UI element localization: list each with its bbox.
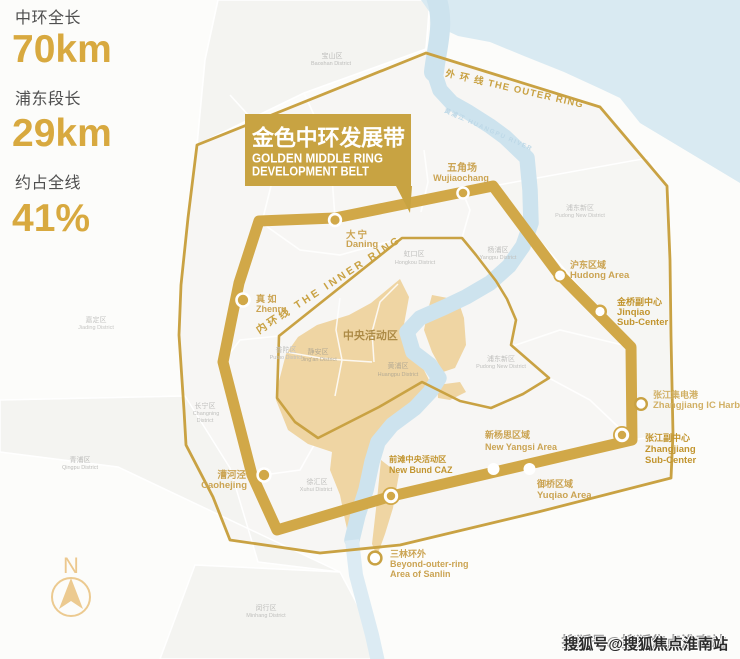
svg-text:闵行区: 闵行区: [256, 603, 277, 612]
svg-text:Baoshan District: Baoshan District: [311, 61, 352, 67]
svg-text:徐汇区: 徐汇区: [307, 477, 328, 486]
svg-text:N: N: [63, 553, 79, 578]
svg-text:41%: 41%: [12, 197, 90, 240]
svg-text:宝山区: 宝山区: [322, 51, 343, 60]
svg-text:Daning: Daning: [346, 239, 378, 250]
svg-text:御桥区域: 御桥区域: [536, 478, 573, 489]
svg-text:Hudong Area: Hudong Area: [570, 270, 630, 281]
svg-text:金桥副中心: 金桥副中心: [616, 296, 662, 307]
svg-text:嘉定区: 嘉定区: [86, 315, 107, 324]
svg-text:黄浦区: 黄浦区: [388, 361, 409, 370]
svg-text:约占全线: 约占全线: [15, 174, 81, 192]
svg-text:Jing'an District: Jing'an District: [301, 357, 337, 363]
svg-text:杨浦区: 杨浦区: [488, 245, 509, 254]
svg-text:Beyond-outer-ring: Beyond-outer-ring: [390, 559, 469, 569]
svg-text:Pudong New District: Pudong New District: [555, 213, 605, 219]
svg-text:静安区: 静安区: [308, 347, 329, 356]
svg-text:Yangpu District: Yangpu District: [480, 255, 517, 261]
svg-text:普陀区: 普陀区: [276, 345, 297, 354]
svg-text:浦东新区: 浦东新区: [487, 354, 515, 363]
svg-text:搜狐号@搜狐焦点淮南站: 搜狐号@搜狐焦点淮南站: [563, 635, 728, 653]
svg-text:虹口区: 虹口区: [404, 249, 425, 258]
svg-text:金色中环发展带: 金色中环发展带: [251, 126, 405, 151]
svg-text:Sub-Center: Sub-Center: [645, 455, 697, 466]
svg-text:Hongkou District: Hongkou District: [395, 260, 436, 266]
svg-text:张江集电港: 张江集电港: [653, 389, 699, 400]
svg-text:Jiading District: Jiading District: [78, 325, 114, 331]
svg-text:70km: 70km: [12, 28, 112, 71]
svg-text:Qingpu District: Qingpu District: [62, 465, 99, 471]
svg-text:District: District: [197, 418, 214, 424]
svg-text:DEVELOPMENT BELT: DEVELOPMENT BELT: [252, 164, 369, 179]
svg-text:沪东区域: 沪东区域: [570, 259, 606, 270]
svg-text:New Bund CAZ: New Bund CAZ: [389, 465, 453, 475]
svg-text:Minhang District: Minhang District: [246, 613, 286, 619]
svg-text:Changning: Changning: [193, 411, 220, 417]
svg-text:Putuo District: Putuo District: [270, 355, 303, 361]
svg-text:浦东段长: 浦东段长: [15, 90, 81, 108]
svg-text:Yuqiao Area: Yuqiao Area: [537, 490, 592, 501]
svg-text:Pudong New District: Pudong New District: [476, 364, 526, 370]
svg-text:张江副中心: 张江副中心: [645, 432, 690, 443]
svg-text:29km: 29km: [12, 112, 112, 155]
svg-text:青浦区: 青浦区: [70, 455, 91, 464]
svg-text:长宁区: 长宁区: [195, 401, 216, 410]
svg-text:New Yangsi Area: New Yangsi Area: [485, 442, 558, 452]
svg-text:Zhangjiang: Zhangjiang: [645, 444, 696, 455]
svg-text:中央活动区: 中央活动区: [343, 328, 398, 342]
svg-text:Xuhui District: Xuhui District: [300, 487, 333, 493]
svg-text:真如: 真如: [256, 293, 279, 304]
svg-text:Wujiaochang: Wujiaochang: [433, 173, 489, 183]
svg-text:Area of Sanlin: Area of Sanlin: [390, 569, 451, 579]
svg-text:浦东新区: 浦东新区: [566, 203, 594, 212]
svg-text:Zhangjiang IC Harbour: Zhangjiang IC Harbour: [653, 400, 740, 411]
svg-text:Caohejing: Caohejing: [201, 480, 247, 491]
svg-text:Zhenru: Zhenru: [256, 304, 287, 314]
svg-text:前滩中央活动区: 前滩中央活动区: [389, 454, 446, 464]
svg-text:新杨思区域: 新杨思区域: [485, 429, 530, 440]
svg-text:中环全长: 中环全长: [15, 9, 81, 27]
svg-text:Huangpu District: Huangpu District: [378, 372, 419, 378]
svg-text:三林环外: 三林环外: [390, 548, 426, 559]
svg-text:Sub-Center: Sub-Center: [617, 317, 669, 328]
